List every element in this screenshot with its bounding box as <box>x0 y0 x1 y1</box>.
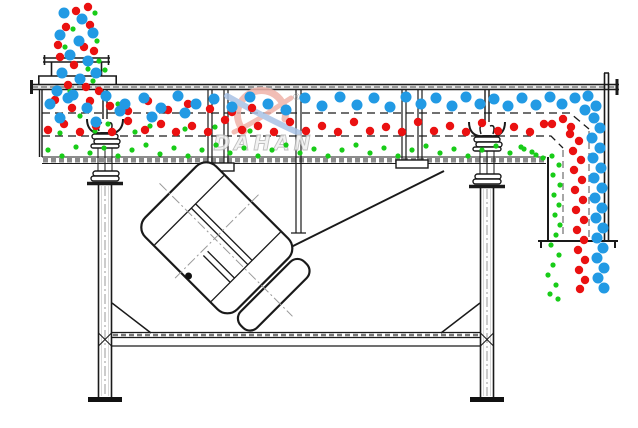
particle-green <box>247 128 252 133</box>
particle-green <box>353 142 358 147</box>
particle-red <box>318 122 326 130</box>
particle-red <box>286 118 294 126</box>
particle-red <box>188 122 196 130</box>
particle-blue <box>580 105 591 116</box>
particle-red <box>206 105 214 113</box>
particle-red <box>172 128 180 136</box>
particle-blue <box>156 103 167 114</box>
particle-red <box>526 128 534 136</box>
particle-red <box>124 117 132 125</box>
particle-red <box>64 81 72 89</box>
particle-red <box>238 126 246 134</box>
particle-red <box>540 120 548 128</box>
particle-red <box>580 216 588 224</box>
particle-blue <box>263 99 274 110</box>
particle-red <box>108 128 116 136</box>
particle-blue <box>590 193 601 204</box>
particle-green <box>409 147 414 152</box>
particle-red <box>430 127 438 135</box>
particle-blue <box>45 99 56 110</box>
particle-blue <box>65 50 76 61</box>
particle-green <box>553 232 558 237</box>
particle-blue <box>82 103 93 114</box>
particle-green <box>555 296 560 301</box>
particle-blue <box>63 93 74 104</box>
particle-red <box>578 176 586 184</box>
particle-blue <box>431 93 442 104</box>
base-beam <box>112 303 480 346</box>
particle-green <box>548 242 553 247</box>
particle-red <box>76 128 84 136</box>
particle-red <box>70 61 78 69</box>
particle-blue <box>587 133 598 144</box>
particle-green <box>507 150 512 155</box>
particle-red <box>462 128 470 136</box>
particle-green <box>94 38 99 43</box>
particle-red <box>221 116 229 124</box>
spring-rod-right <box>485 90 489 122</box>
particle-green <box>381 145 386 150</box>
particle-blue <box>517 93 528 104</box>
particle-green <box>423 143 428 148</box>
particle-blue <box>300 93 311 104</box>
particle-green <box>102 67 107 72</box>
particle-blue <box>545 92 556 103</box>
particle-blue <box>588 153 599 164</box>
particle-red <box>334 128 342 136</box>
particle-green <box>90 78 95 83</box>
particle-red <box>577 156 585 164</box>
particle-green <box>557 222 562 227</box>
particle-red <box>572 206 580 214</box>
particle-blue <box>595 143 606 154</box>
particle-blue <box>489 94 500 105</box>
particle-blue <box>531 100 542 111</box>
watermark: ® DAHAN <box>213 90 314 155</box>
particle-blue <box>598 223 609 234</box>
particle-blue <box>599 263 610 274</box>
particle-green <box>101 145 106 150</box>
particle-red <box>62 23 70 31</box>
particle-green <box>77 113 82 118</box>
particle-green <box>129 147 134 152</box>
particle-red <box>350 118 358 126</box>
particle-green <box>549 153 554 158</box>
particle-red <box>510 123 518 131</box>
particle-blue <box>591 213 602 224</box>
particle-red <box>382 123 390 131</box>
particle-blue <box>191 99 202 110</box>
particle-green <box>213 142 218 147</box>
particles-green <box>45 10 562 301</box>
particle-green <box>70 26 75 31</box>
particle-red <box>478 119 486 127</box>
particle-blue <box>599 283 610 294</box>
particle-blue <box>352 100 363 111</box>
particle-red <box>580 236 588 244</box>
particle-red <box>446 122 454 130</box>
particle-green <box>45 147 50 152</box>
particle-green <box>171 145 176 150</box>
particle-red <box>84 3 92 11</box>
particle-green <box>185 153 190 158</box>
particle-red <box>576 285 584 293</box>
particle-green <box>518 144 523 149</box>
particle-blue <box>595 123 606 134</box>
particle-green <box>182 126 187 131</box>
particle-red <box>106 102 114 110</box>
particle-red <box>366 127 374 135</box>
particle-blue <box>91 68 102 79</box>
particle-green <box>556 162 561 167</box>
particle-green <box>62 44 67 49</box>
particle-blue <box>52 86 63 97</box>
particle-red <box>54 41 62 49</box>
particle-green <box>550 172 555 177</box>
particle-blue <box>591 101 602 112</box>
particle-blue <box>75 74 86 85</box>
vibration-motor <box>119 140 337 358</box>
foot-plate-right <box>470 397 504 402</box>
particle-blue <box>593 273 604 284</box>
particle-blue <box>592 253 603 264</box>
particle-green <box>545 272 550 277</box>
particle-green <box>339 147 344 152</box>
particle-blue <box>557 99 568 110</box>
particle-blue <box>83 56 94 67</box>
particle-blue <box>209 94 220 105</box>
particle-blue <box>77 14 88 25</box>
particle-green <box>550 262 555 267</box>
particle-red <box>302 127 310 135</box>
particle-blue <box>597 183 608 194</box>
particle-green <box>552 212 557 217</box>
particle-blue <box>461 92 472 103</box>
particle-green <box>255 153 260 158</box>
particle-green <box>73 144 78 149</box>
particle-blue <box>180 108 191 119</box>
particle-red <box>414 118 422 126</box>
particle-green <box>143 142 148 147</box>
particle-red <box>204 128 212 136</box>
particle-red <box>68 104 76 112</box>
particle-blue <box>335 92 346 103</box>
particle-blue <box>475 99 486 110</box>
particle-red <box>270 128 278 136</box>
foot-plate-left <box>88 397 122 402</box>
particle-red <box>579 196 587 204</box>
particle-blue <box>369 93 380 104</box>
particle-red <box>254 122 262 130</box>
particle-green <box>57 130 62 135</box>
particle-green <box>465 153 470 158</box>
particle-green <box>96 58 101 63</box>
particle-red <box>575 137 583 145</box>
particle-green <box>59 153 64 158</box>
particle-blue <box>245 92 256 103</box>
particle-green <box>367 150 372 155</box>
particle-red <box>575 266 583 274</box>
particle-red <box>398 128 406 136</box>
particle-red <box>141 126 149 134</box>
top-rail <box>30 79 619 95</box>
particle-blue <box>596 163 607 174</box>
particles-red <box>44 3 589 293</box>
particle-blue <box>147 112 158 123</box>
particle-blue <box>173 91 184 102</box>
particle-blue <box>55 113 66 124</box>
particle-blue <box>597 203 608 214</box>
particle-green <box>283 142 288 147</box>
particle-blue <box>115 106 126 117</box>
particle-green <box>157 151 162 156</box>
particle-red <box>570 166 578 174</box>
particle-green <box>437 150 442 155</box>
particle-blue <box>88 28 99 39</box>
particle-green <box>493 143 498 148</box>
particle-blue <box>227 102 238 113</box>
particle-blue <box>59 8 70 19</box>
support-leg-left <box>88 185 122 402</box>
particle-red <box>566 130 574 138</box>
particle-green <box>199 147 204 152</box>
particle-red <box>573 226 581 234</box>
screen-box-left-wall <box>40 90 43 157</box>
particle-blue <box>55 30 66 41</box>
particle-green <box>132 129 137 134</box>
particle-blue <box>74 36 85 47</box>
particle-red <box>569 147 577 155</box>
particle-blue <box>91 117 102 128</box>
particle-blue <box>598 243 609 254</box>
particle-blue <box>570 93 581 104</box>
particle-blue <box>589 113 600 124</box>
particle-blue <box>447 101 458 112</box>
particle-green <box>325 153 330 158</box>
particle-red <box>90 47 98 55</box>
particle-green <box>395 153 400 158</box>
particle-green <box>556 252 561 257</box>
particle-green <box>92 10 97 15</box>
particle-green <box>479 147 484 152</box>
diagram-canvas: ® DAHAN <box>0 0 638 428</box>
particle-green <box>556 202 561 207</box>
particle-blue <box>281 105 292 116</box>
particle-green <box>451 146 456 151</box>
particle-blue <box>589 173 600 184</box>
particle-green <box>269 147 274 152</box>
screen-mesh-line-1 <box>42 113 589 238</box>
particle-blue <box>401 92 412 103</box>
particle-green <box>551 192 556 197</box>
particle-red <box>44 126 52 134</box>
particle-red <box>56 53 64 61</box>
particle-green <box>547 291 552 296</box>
particle-red <box>559 115 567 123</box>
particle-red <box>581 256 589 264</box>
particle-green <box>115 153 120 158</box>
gusset-left <box>112 303 151 333</box>
particle-green <box>212 124 217 129</box>
particle-blue <box>583 91 594 102</box>
particle-blue <box>101 91 112 102</box>
particle-green <box>529 149 534 154</box>
particle-blue <box>317 101 328 112</box>
particle-green <box>540 155 545 160</box>
particle-red <box>248 104 256 112</box>
particle-green <box>553 282 558 287</box>
particle-red <box>494 127 502 135</box>
particle-green <box>311 146 316 151</box>
particle-red <box>574 246 582 254</box>
particle-green <box>557 182 562 187</box>
particle-red <box>581 276 589 284</box>
particle-green <box>297 150 302 155</box>
particle-red <box>157 120 165 128</box>
particle-green <box>241 145 246 150</box>
particle-red <box>72 7 80 15</box>
particle-green <box>85 66 90 71</box>
gusset-right <box>441 303 480 333</box>
support-spring-left <box>87 119 123 184</box>
support-leg-right <box>470 188 504 402</box>
particle-blue <box>139 93 150 104</box>
particle-red <box>82 83 90 91</box>
screen-box-right-wall <box>604 73 609 241</box>
particle-green <box>87 150 92 155</box>
particle-red <box>571 186 579 194</box>
particle-blue <box>416 99 427 110</box>
vibrating-screen-diagram: ® DAHAN <box>0 0 638 428</box>
particle-blue <box>57 68 68 79</box>
particle-blue <box>503 101 514 112</box>
particle-blue <box>592 233 603 244</box>
particle-green <box>227 150 232 155</box>
particle-green <box>105 121 110 126</box>
particle-red <box>548 120 556 128</box>
particle-blue <box>385 102 396 113</box>
